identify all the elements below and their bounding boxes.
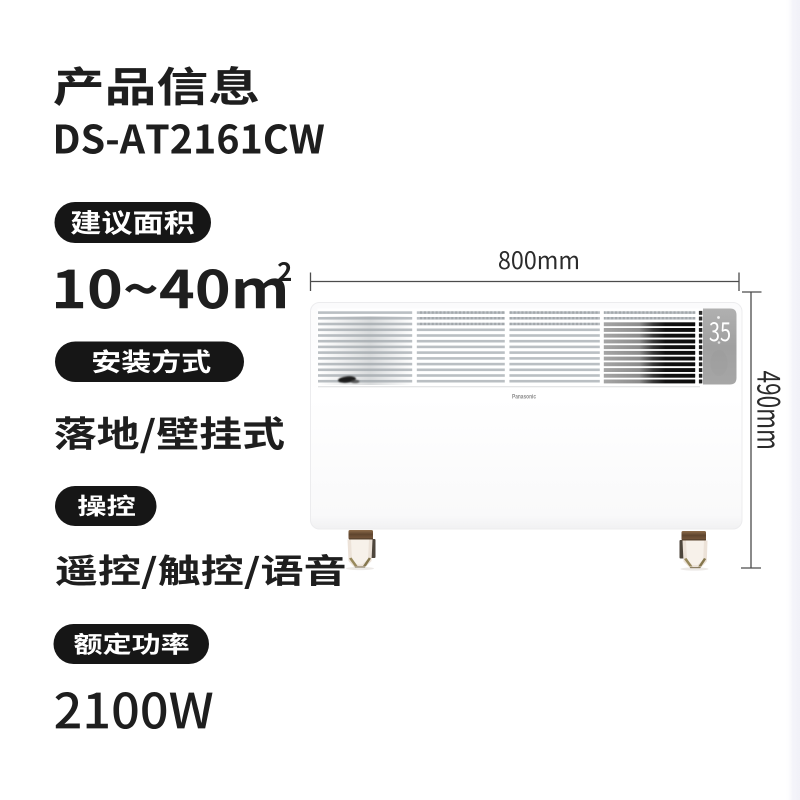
svg-text:Panasonic: Panasonic bbox=[512, 395, 537, 401]
